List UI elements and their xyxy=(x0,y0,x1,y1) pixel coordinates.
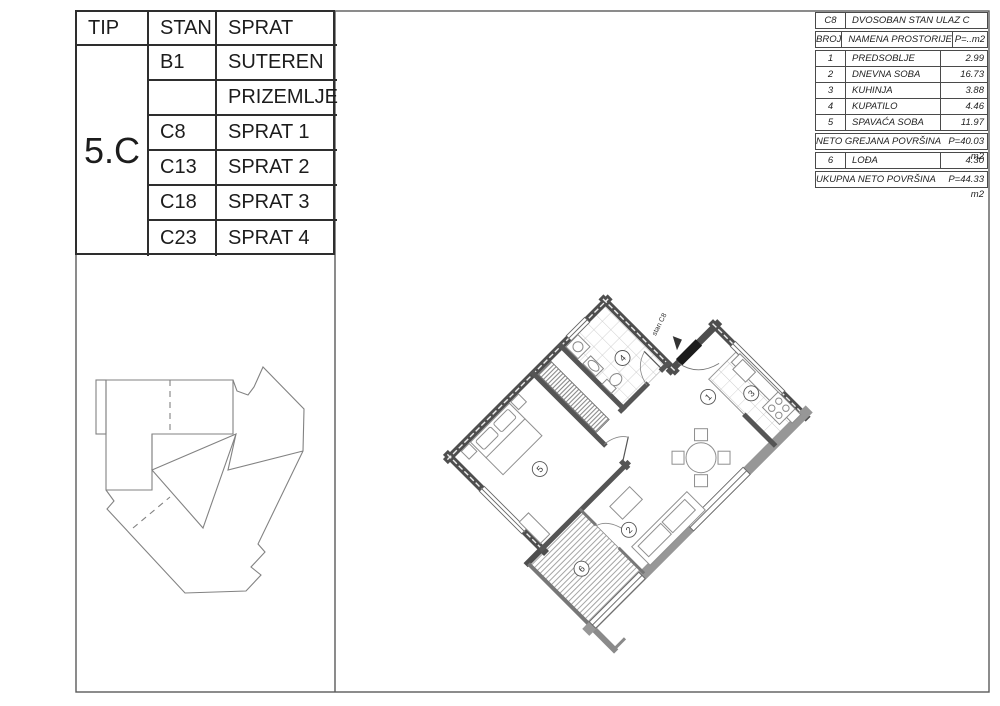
schedule-header-row: BROJ NAMENA PROSTORIJE P=..m2 xyxy=(815,31,988,48)
drawing-sheet: { "left_table": { "headers": ["TIP", "ST… xyxy=(0,0,1000,706)
total-net-area-label: UKUPNA NETO POVRŠINA xyxy=(816,172,936,187)
key-plan-wing-divider xyxy=(228,434,303,470)
col-header-sprat: SPRAT xyxy=(217,12,337,46)
room-row: 3 KUHINJA 3.88 xyxy=(816,82,987,98)
key-plan xyxy=(96,367,304,593)
table-cell-stan: C23 xyxy=(149,221,217,256)
col-header-namena: NAMENA PROSTORIJE xyxy=(842,32,952,47)
table-cell-sprat: SPRAT 3 xyxy=(217,186,337,221)
svg-text:stan C8: stan C8 xyxy=(651,312,668,337)
room-area: 11.97 xyxy=(941,115,987,130)
col-header-broj: BROJ xyxy=(816,32,842,47)
room-label-5: 5 xyxy=(529,458,550,479)
room-area: 2.99 xyxy=(941,51,987,66)
room-name: SPAVAĆA SOBA xyxy=(846,115,941,130)
type-floor-table: TIP STAN SPRAT 5.C B1 SUTEREN PRIZEMLJE … xyxy=(75,10,335,255)
room-number: 5 xyxy=(816,115,846,130)
col-header-tip: TIP xyxy=(77,12,149,46)
room-name: KUPATILO xyxy=(846,99,941,114)
schedule-room-rows: 1 PREDSOBLJE 2.99 2 DNEVNA SOBA 16.73 3 … xyxy=(815,50,988,131)
floor-plan: 1 2 3 4 5 6 stan C8 xyxy=(431,254,828,651)
room-area: 4.46 xyxy=(941,99,987,114)
apartment-schedule-table: C8 DVOSOBAN STAN ULAZ C BROJ NAMENA PROS… xyxy=(815,12,988,190)
loggia-row: 6 LOĐA 4.30 xyxy=(815,152,988,169)
room-number: 4 xyxy=(816,99,846,114)
room-number: 1 xyxy=(816,51,846,66)
key-plan-inner-triangle xyxy=(152,434,236,528)
col-header-stan: STAN xyxy=(149,12,217,46)
room-name: KUHINJA xyxy=(846,83,941,98)
table-cell-stan xyxy=(149,81,217,116)
coffee-table xyxy=(610,487,643,520)
table-cell-stan: C13 xyxy=(149,151,217,186)
room-row: 1 PREDSOBLJE 2.99 xyxy=(816,51,987,66)
room-name: DNEVNA SOBA xyxy=(846,67,941,82)
room-number: 3 xyxy=(816,83,846,98)
room-label-2: 2 xyxy=(618,519,639,540)
total-net-area-row: UKUPNA NETO POVRŠINA P=44.33 m2 xyxy=(815,171,988,188)
room-name: LOĐA xyxy=(846,153,941,168)
room-row: 5 SPAVAĆA SOBA 11.97 xyxy=(816,114,987,130)
entrance-arrow-icon xyxy=(668,333,685,350)
table-cell-stan: B1 xyxy=(149,46,217,81)
apartment-title: DVOSOBAN STAN ULAZ C xyxy=(846,13,987,28)
table-cell-sprat: SPRAT 2 xyxy=(217,151,337,186)
room-row: 4 KUPATILO 4.46 xyxy=(816,98,987,114)
table-cell-sprat: PRIZEMLJE xyxy=(217,81,337,116)
col-header-area: P=..m2 xyxy=(953,32,987,47)
room-number: 6 xyxy=(816,153,846,168)
table-cell-sprat: SUTEREN xyxy=(217,46,337,81)
schedule-title-row: C8 DVOSOBAN STAN ULAZ C xyxy=(815,12,988,29)
net-heated-area-row: NETO GREJANA POVRŠINA P=40.03 m2 xyxy=(815,133,988,150)
room-area: 4.30 xyxy=(941,153,987,168)
room-area: 3.88 xyxy=(941,83,987,98)
total-net-area-value: P=44.33 m2 xyxy=(936,172,987,187)
table-cell-sprat: SPRAT 1 xyxy=(217,116,337,151)
room-area: 16.73 xyxy=(941,67,987,82)
entrance-label: stan C8 xyxy=(651,312,668,337)
key-plan-dashed-diagonal xyxy=(133,497,170,528)
apartment-code: C8 xyxy=(816,13,846,28)
table-cell-stan: C18 xyxy=(149,186,217,221)
room-row: 2 DNEVNA SOBA 16.73 xyxy=(816,66,987,82)
key-plan-outer-wing xyxy=(106,367,304,593)
room-name: PREDSOBLJE xyxy=(846,51,941,66)
table-cell-sprat: SPRAT 4 xyxy=(217,221,337,256)
net-heated-area-label: NETO GREJANA POVRŠINA xyxy=(816,134,941,149)
net-heated-area-value: P=40.03 m2 xyxy=(941,134,987,149)
dining-set xyxy=(672,429,730,487)
type-value: 5.C xyxy=(77,46,149,256)
room-number: 2 xyxy=(816,67,846,82)
table-cell-stan: C8 xyxy=(149,116,217,151)
room-label-1: 1 xyxy=(697,386,718,407)
key-plan-left-rect xyxy=(96,380,106,434)
